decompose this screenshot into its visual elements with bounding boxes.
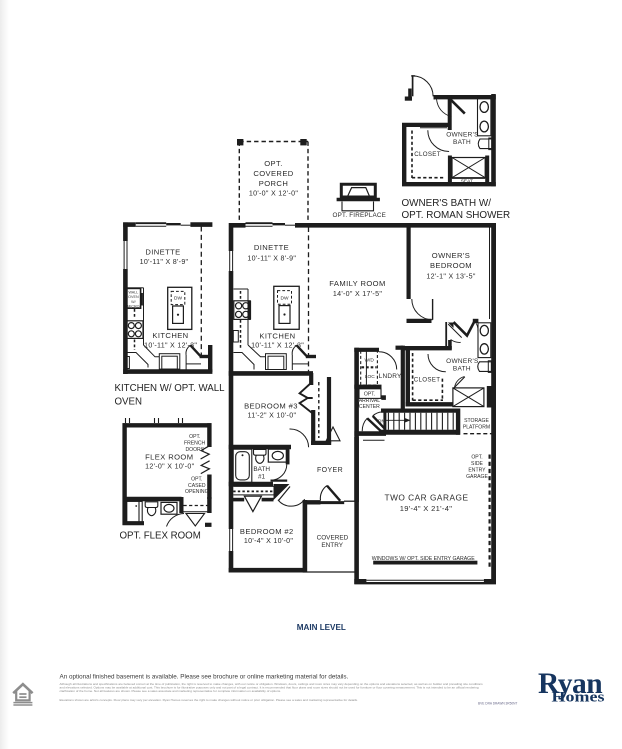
svg-text:#1: #1 bbox=[258, 473, 266, 480]
svg-text:ENTRY: ENTRY bbox=[321, 542, 343, 549]
svg-text:STORAGE: STORAGE bbox=[464, 418, 489, 424]
svg-text:OWNER'S BATH W/: OWNER'S BATH W/ bbox=[402, 198, 492, 209]
svg-text:GARAGE: GARAGE bbox=[466, 474, 488, 480]
svg-text:LOC: LOC bbox=[365, 374, 375, 380]
svg-text:COVERED: COVERED bbox=[317, 535, 349, 542]
svg-text:PLATFORM: PLATFORM bbox=[463, 425, 490, 431]
svg-text:KITCHEN: KITCHEN bbox=[259, 331, 295, 340]
svg-text:OPT.: OPT. bbox=[264, 159, 282, 168]
svg-text:10'-4" X 10'-0": 10'-4" X 10'-0" bbox=[244, 537, 293, 545]
svg-text:OPENING: OPENING bbox=[185, 489, 209, 495]
svg-text:OPT.: OPT. bbox=[364, 392, 375, 398]
svg-text:CLOSET: CLOSET bbox=[414, 376, 441, 383]
svg-text:MAIN LEVEL: MAIN LEVEL bbox=[297, 623, 346, 632]
svg-text:FRENCH: FRENCH bbox=[184, 441, 206, 447]
svg-text:10'-11" X 8'-9": 10'-11" X 8'-9" bbox=[247, 255, 296, 263]
svg-text:FLEX ROOM: FLEX ROOM bbox=[145, 452, 193, 461]
svg-text:PORCH: PORCH bbox=[259, 179, 288, 188]
svg-text:ARRIVAL: ARRIVAL bbox=[359, 398, 381, 404]
svg-text:10'-11" X 8'-9": 10'-11" X 8'-9" bbox=[140, 258, 189, 266]
svg-text:LNDRY.: LNDRY. bbox=[379, 373, 403, 380]
svg-text:OPT. FLEX ROOM: OPT. FLEX ROOM bbox=[120, 530, 201, 541]
svg-text:KITCHEN W/ OPT. WALL: KITCHEN W/ OPT. WALL bbox=[115, 383, 226, 394]
svg-text:OVEN: OVEN bbox=[115, 396, 142, 407]
svg-text:12'-1" X 13'-5": 12'-1" X 13'-5" bbox=[426, 273, 475, 281]
svg-text:TWO CAR GARAGE: TWO CAR GARAGE bbox=[385, 493, 469, 503]
svg-text:FAMILY ROOM: FAMILY ROOM bbox=[329, 279, 385, 288]
svg-text:10'-11" X 12'-3": 10'-11" X 12'-3" bbox=[251, 341, 304, 349]
svg-text:DW: DW bbox=[174, 296, 182, 302]
svg-text:FOYER: FOYER bbox=[317, 467, 343, 474]
svg-text:10'-11" X 12'-3": 10'-11" X 12'-3" bbox=[144, 342, 197, 350]
svg-text:19'-4" X 21'-4": 19'-4" X 21'-4" bbox=[400, 504, 452, 513]
svg-text:10'-0" X 12'-0": 10'-0" X 12'-0" bbox=[249, 189, 298, 197]
svg-text:OWNER'S: OWNER'S bbox=[446, 358, 479, 365]
svg-text:SIDE: SIDE bbox=[471, 461, 483, 467]
svg-text:DN: DN bbox=[378, 418, 385, 424]
svg-text:WALL: WALL bbox=[128, 291, 138, 295]
svg-text:OVEN: OVEN bbox=[128, 295, 139, 299]
svg-text:clarification of the home. Not: clarification of the home. Not all featu… bbox=[60, 689, 282, 693]
svg-text:W/D: W/D bbox=[365, 358, 375, 364]
svg-text:OPT.: OPT. bbox=[471, 454, 482, 460]
svg-text:BEDROOM #2: BEDROOM #2 bbox=[240, 527, 294, 536]
svg-text:SEAT: SEAT bbox=[461, 179, 473, 185]
svg-text:11'-2" X 10'-0": 11'-2" X 10'-0" bbox=[248, 411, 297, 419]
svg-text:CLOSET: CLOSET bbox=[414, 151, 441, 158]
svg-text:BEDROOM #3: BEDROOM #3 bbox=[244, 402, 298, 411]
svg-text:Elevations shown are artist's: Elevations shown are artist's concepts. … bbox=[60, 698, 359, 702]
svg-text:COVERED: COVERED bbox=[253, 169, 293, 178]
svg-text:DINETTE: DINETTE bbox=[254, 243, 289, 252]
svg-text:12'-0" X 10'-0": 12'-0" X 10'-0" bbox=[145, 462, 194, 470]
svg-text:BEDROOM: BEDROOM bbox=[430, 261, 472, 270]
svg-text:Homes: Homes bbox=[552, 690, 605, 706]
svg-text:OWNER'S: OWNER'S bbox=[432, 251, 470, 260]
svg-text:OWNER'S: OWNER'S bbox=[446, 131, 479, 138]
svg-text:An optional finished basement: An optional finished basement is availab… bbox=[60, 674, 349, 681]
svg-text:WINDOWS W/ OPT. SIDE ENTRY GAR: WINDOWS W/ OPT. SIDE ENTRY GARAGE bbox=[372, 556, 476, 562]
svg-text:OPT.: OPT. bbox=[189, 434, 200, 440]
svg-text:ENTRY: ENTRY bbox=[468, 468, 486, 474]
svg-text:OPT. FIREPLACE: OPT. FIREPLACE bbox=[333, 212, 387, 219]
svg-text:DOORS: DOORS bbox=[185, 447, 204, 453]
svg-text:14'-0" X 17'-5": 14'-0" X 17'-5" bbox=[333, 290, 382, 298]
svg-text:KITCHEN: KITCHEN bbox=[152, 331, 188, 340]
svg-text:BATH: BATH bbox=[253, 466, 270, 473]
svg-text:BATH: BATH bbox=[453, 366, 471, 373]
svg-text:MICRO: MICRO bbox=[127, 304, 139, 308]
svg-text:BATH: BATH bbox=[453, 139, 471, 146]
svg-text:DW: DW bbox=[281, 296, 289, 302]
svg-text:CENTER: CENTER bbox=[359, 404, 380, 410]
svg-text:CASED: CASED bbox=[188, 483, 206, 489]
svg-text:OPT. ROMAN SHOWER: OPT. ROMAN SHOWER bbox=[402, 210, 511, 221]
svg-text:BVE DRA DRAWN 3R50NT: BVE DRA DRAWN 3R50NT bbox=[478, 702, 517, 706]
svg-text:OPT.: OPT. bbox=[191, 476, 202, 482]
svg-text:DINETTE: DINETTE bbox=[145, 247, 180, 256]
